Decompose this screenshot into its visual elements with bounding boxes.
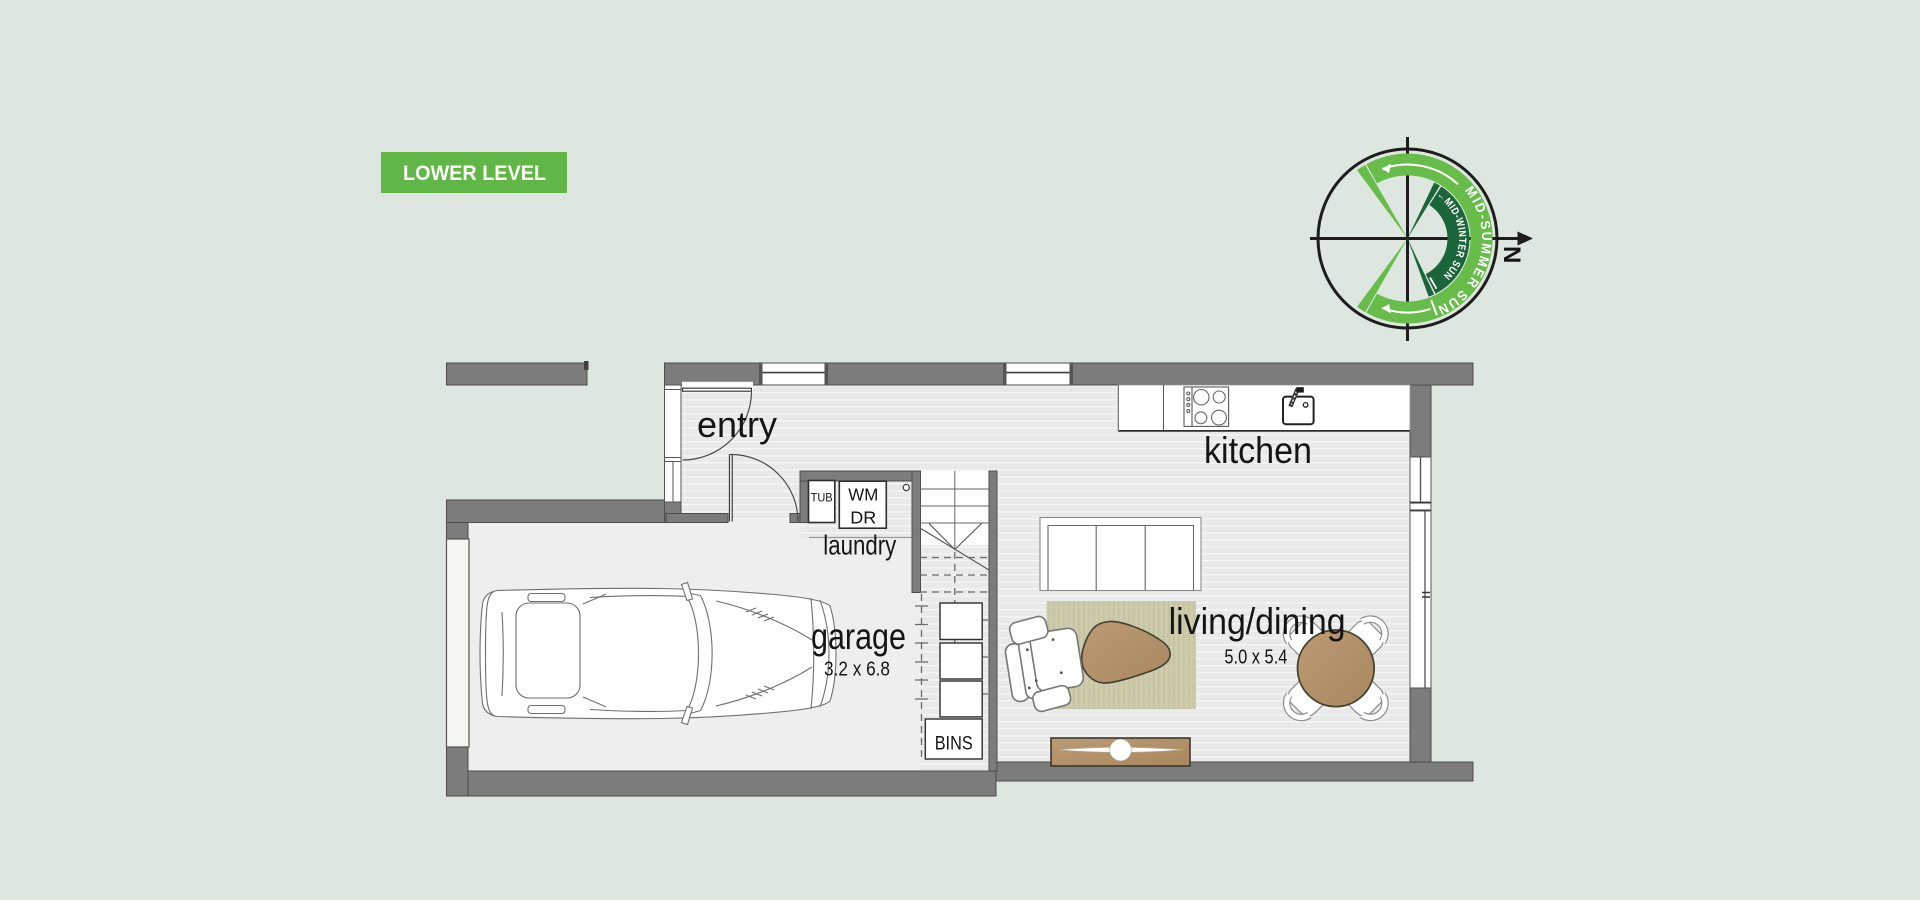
svg-text:living/dining: living/dining: [1169, 601, 1346, 642]
svg-text:N: N: [1498, 246, 1525, 263]
svg-text:entry: entry: [697, 404, 777, 445]
svg-text:DR: DR: [850, 508, 876, 528]
svg-text:LOWER LEVEL: LOWER LEVEL: [403, 162, 546, 185]
svg-text:3.2 x 6.8: 3.2 x 6.8: [824, 659, 890, 681]
svg-text:5.0 x 5.4: 5.0 x 5.4: [1224, 646, 1287, 668]
svg-text:BINS: BINS: [935, 734, 973, 755]
svg-text:kitchen: kitchen: [1204, 429, 1312, 471]
svg-text:TUB: TUB: [811, 493, 833, 505]
svg-text:WM: WM: [848, 485, 878, 505]
svg-text:garage: garage: [811, 616, 906, 657]
svg-text:laundry: laundry: [823, 530, 896, 561]
